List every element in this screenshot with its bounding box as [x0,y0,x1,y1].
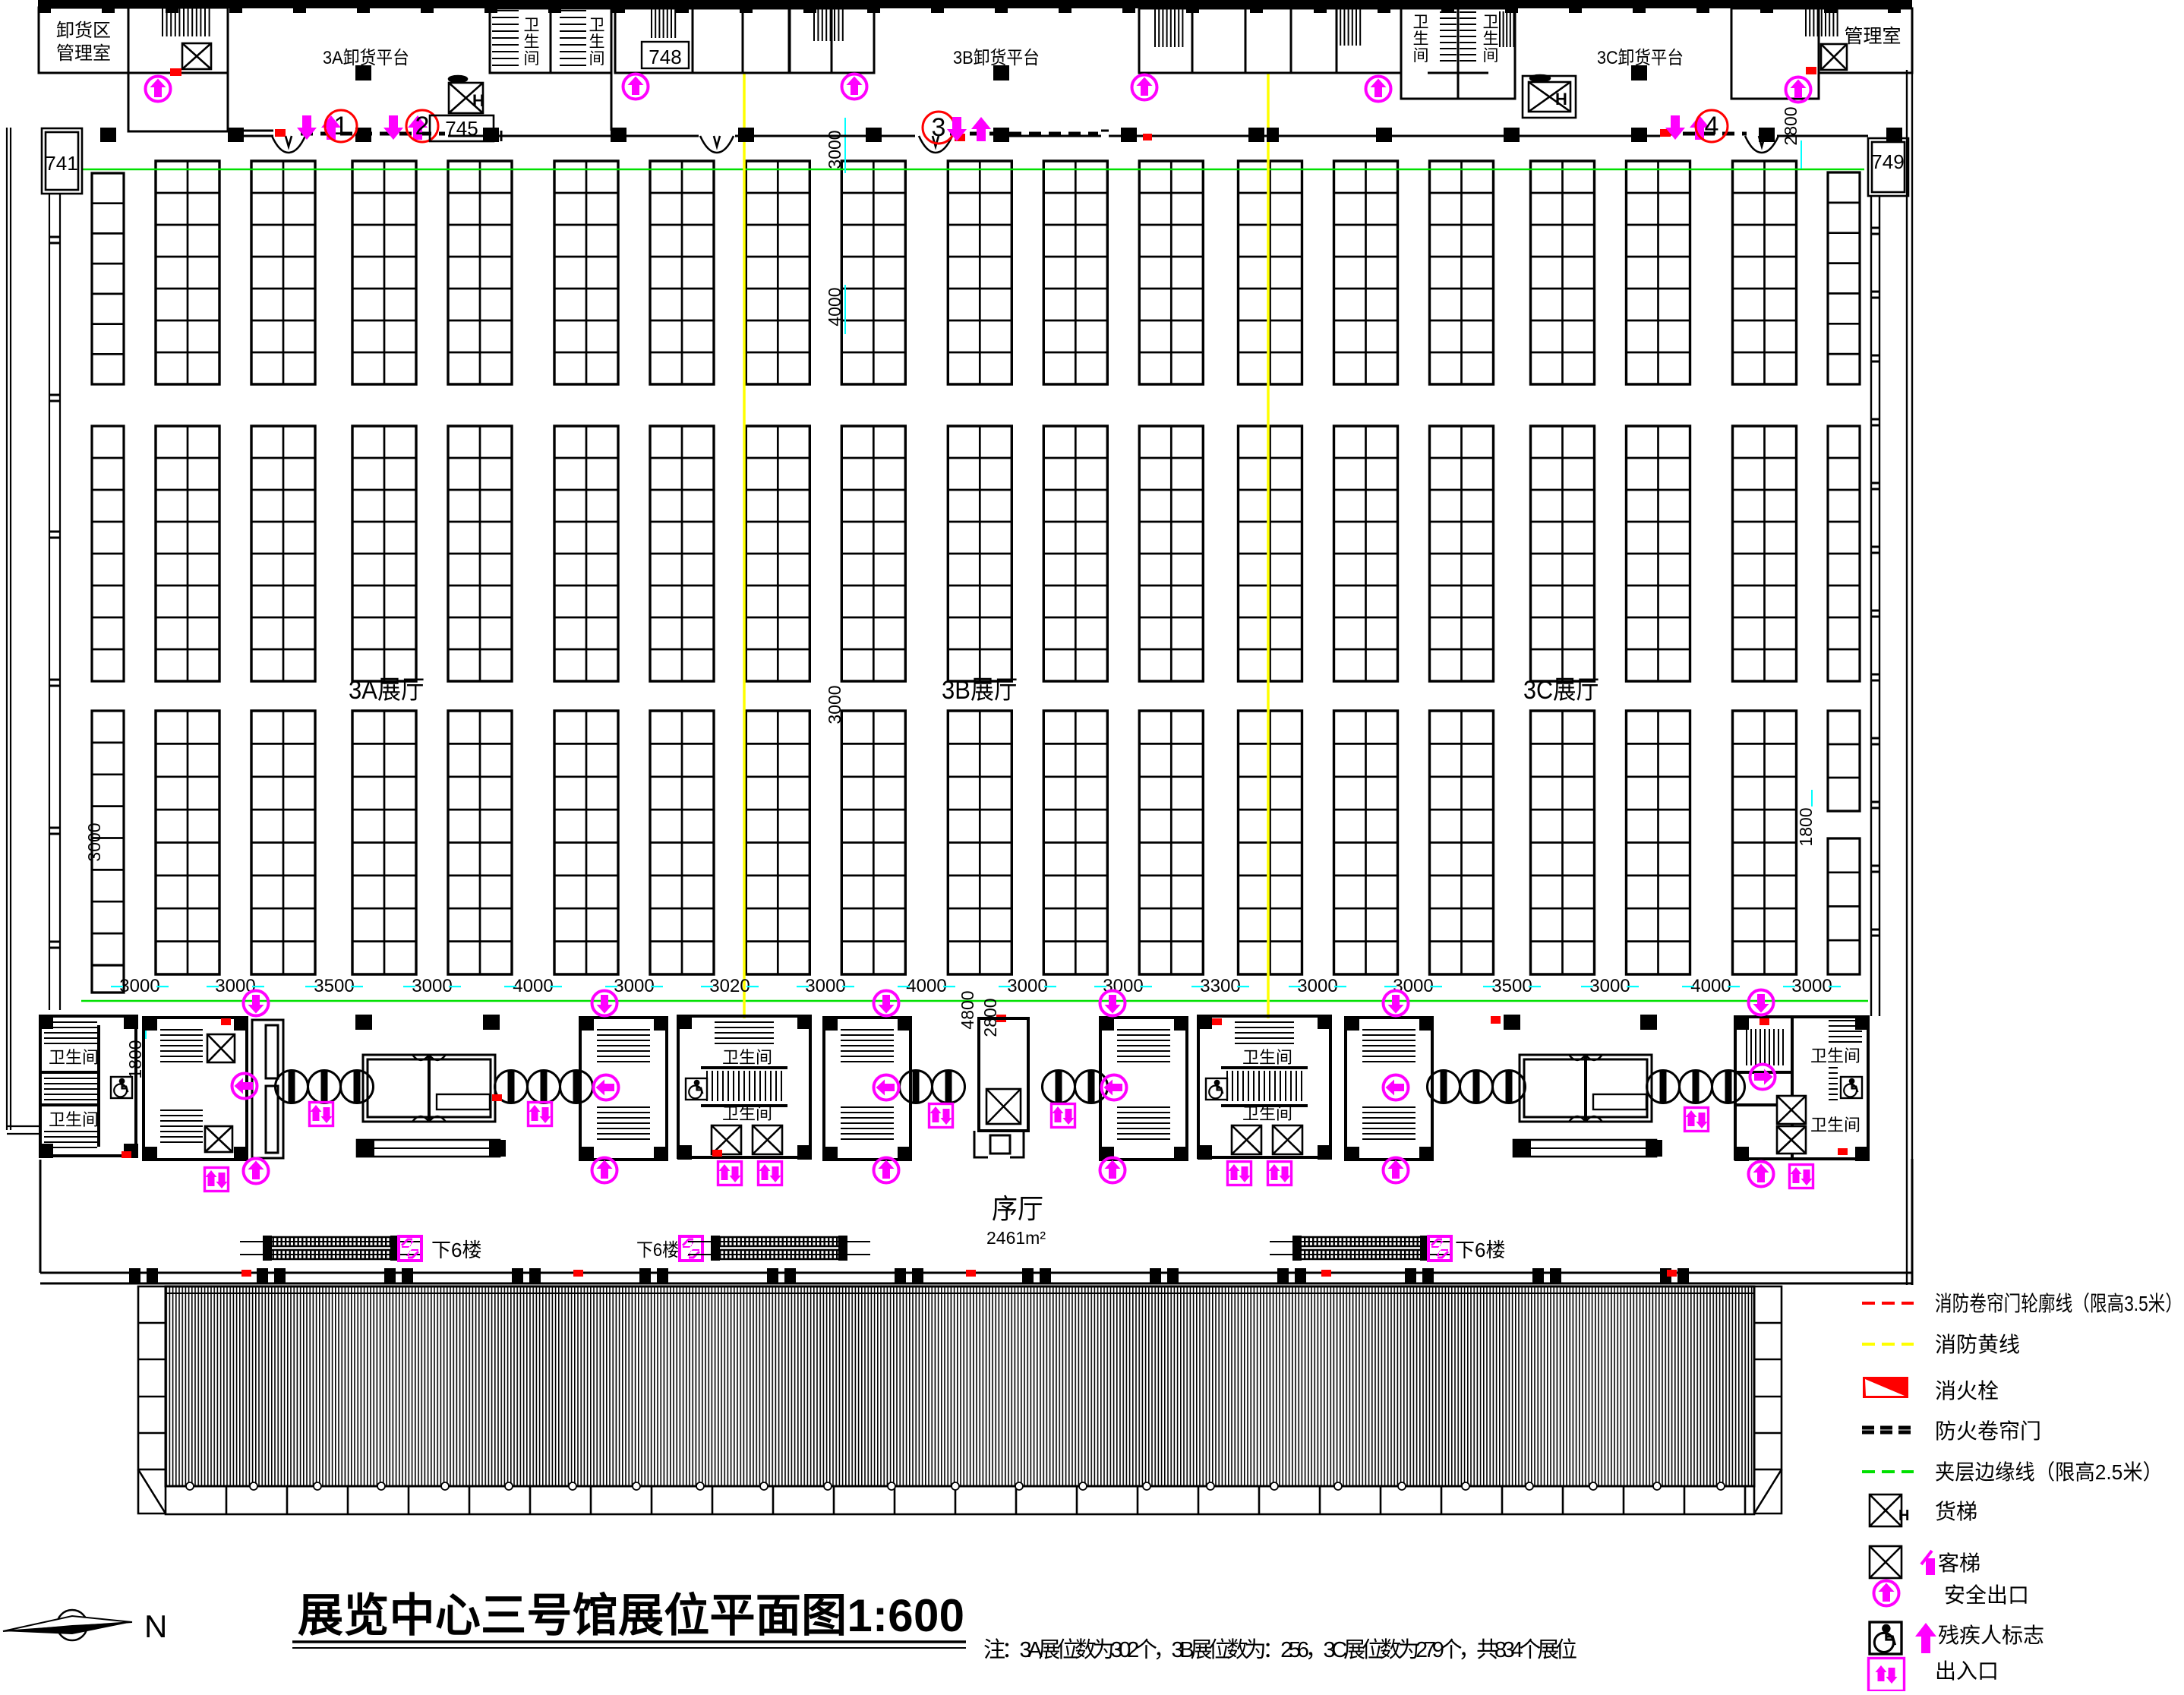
svg-text:消防黄线: 消防黄线 [1935,1333,2020,1356]
svg-text:卫生间: 卫生间 [49,1110,99,1129]
svg-text:卫生间: 卫生间 [722,1104,772,1123]
svg-text:H: H [1555,90,1567,109]
svg-text:3020: 3020 [709,976,750,996]
svg-text:2: 2 [415,112,430,140]
svg-text:2800: 2800 [1781,106,1801,145]
svg-text:3000: 3000 [614,976,654,996]
svg-text:748: 748 [649,46,681,68]
svg-text:4000: 4000 [1690,976,1731,996]
svg-text:749: 749 [1871,150,1904,173]
svg-text:H: H [472,91,484,110]
svg-text:卫生间: 卫生间 [1242,1048,1292,1067]
svg-text:3B卸货平台: 3B卸货平台 [953,48,1040,68]
svg-text:3A展厅: 3A展厅 [349,676,424,705]
svg-text:卫生间: 卫生间 [524,17,540,68]
svg-text:消防卷帘门轮廓线（限高3.5米）: 消防卷帘门轮廓线（限高3.5米） [1935,1292,2182,1315]
svg-text:卸货区: 卸货区 [56,21,111,41]
svg-text:3500: 3500 [314,976,354,996]
svg-text:4000: 4000 [825,287,844,326]
svg-text:下6楼: 下6楼 [1455,1239,1505,1261]
svg-text:安全出口: 安全出口 [1944,1583,2029,1607]
svg-text:3000: 3000 [84,822,104,861]
svg-text:3A卸货平台: 3A卸货平台 [323,48,409,68]
svg-text:卫生间: 卫生间 [1413,14,1429,65]
svg-text:3C展厅: 3C展厅 [1523,676,1599,705]
svg-text:下6楼: 下6楼 [431,1239,481,1261]
svg-text:3000: 3000 [1297,976,1337,996]
svg-text:H: H [1898,1507,1909,1524]
svg-text:741: 741 [45,152,77,175]
svg-text:1: 1 [334,112,349,140]
svg-text:3000: 3000 [1589,976,1630,996]
svg-text:卫生间: 卫生间 [1242,1104,1292,1123]
svg-text:残疾人标志: 残疾人标志 [1938,1624,2044,1647]
svg-text:2461m²: 2461m² [986,1228,1046,1248]
svg-text:卫生间: 卫生间 [1810,1046,1861,1065]
svg-text:夹层边缘线（限高2.5米）: 夹层边缘线（限高2.5米） [1935,1460,2163,1484]
svg-text:4000: 4000 [513,976,553,996]
svg-text:序厅: 序厅 [992,1193,1043,1224]
svg-text:3000: 3000 [1393,976,1433,996]
svg-text:3000: 3000 [1103,976,1143,996]
svg-text:4800: 4800 [958,990,977,1029]
svg-text:防火卷帘门: 防火卷帘门 [1935,1419,2041,1443]
svg-text:卫生间: 卫生间 [1810,1116,1861,1135]
svg-text:3300: 3300 [1200,976,1240,996]
svg-text:4: 4 [1705,112,1719,140]
svg-text:卫生间: 卫生间 [1483,14,1499,65]
svg-text:N: N [144,1608,167,1644]
svg-text:3000: 3000 [412,976,452,996]
svg-text:3000: 3000 [1791,976,1832,996]
svg-text:消火栓: 消火栓 [1935,1379,1999,1403]
svg-text:3000: 3000 [119,976,159,996]
svg-text:注：3A展位数为302个，3B展位数为：256，3C展位数为: 注：3A展位数为302个，3B展位数为：256，3C展位数为279个，共834个… [983,1637,1577,1662]
svg-text:3000: 3000 [805,976,845,996]
svg-text:3: 3 [932,113,946,142]
svg-text:下6楼: 下6楼 [636,1240,679,1261]
svg-text:3000: 3000 [1007,976,1047,996]
svg-text:3B展厅: 3B展厅 [942,676,1018,705]
svg-text:货梯: 货梯 [1935,1500,1977,1523]
svg-text:1800: 1800 [1796,807,1816,846]
svg-text:3000: 3000 [825,685,844,724]
svg-text:展览中心三号馆展位平面图1:600: 展览中心三号馆展位平面图1:600 [298,1590,964,1641]
svg-text:卫生间: 卫生间 [722,1048,772,1067]
svg-text:卫生间: 卫生间 [589,17,605,68]
svg-text:出入口: 出入口 [1935,1659,1999,1683]
svg-text:745: 745 [445,117,478,140]
svg-text:3500: 3500 [1491,976,1532,996]
svg-text:卫生间: 卫生间 [49,1048,99,1067]
svg-text:3C卸货平台: 3C卸货平台 [1597,48,1684,68]
svg-text:管理室: 管理室 [1844,26,1901,47]
svg-text:管理室: 管理室 [56,43,111,64]
svg-text:4000: 4000 [906,976,946,996]
svg-text:客梯: 客梯 [1938,1551,1980,1575]
